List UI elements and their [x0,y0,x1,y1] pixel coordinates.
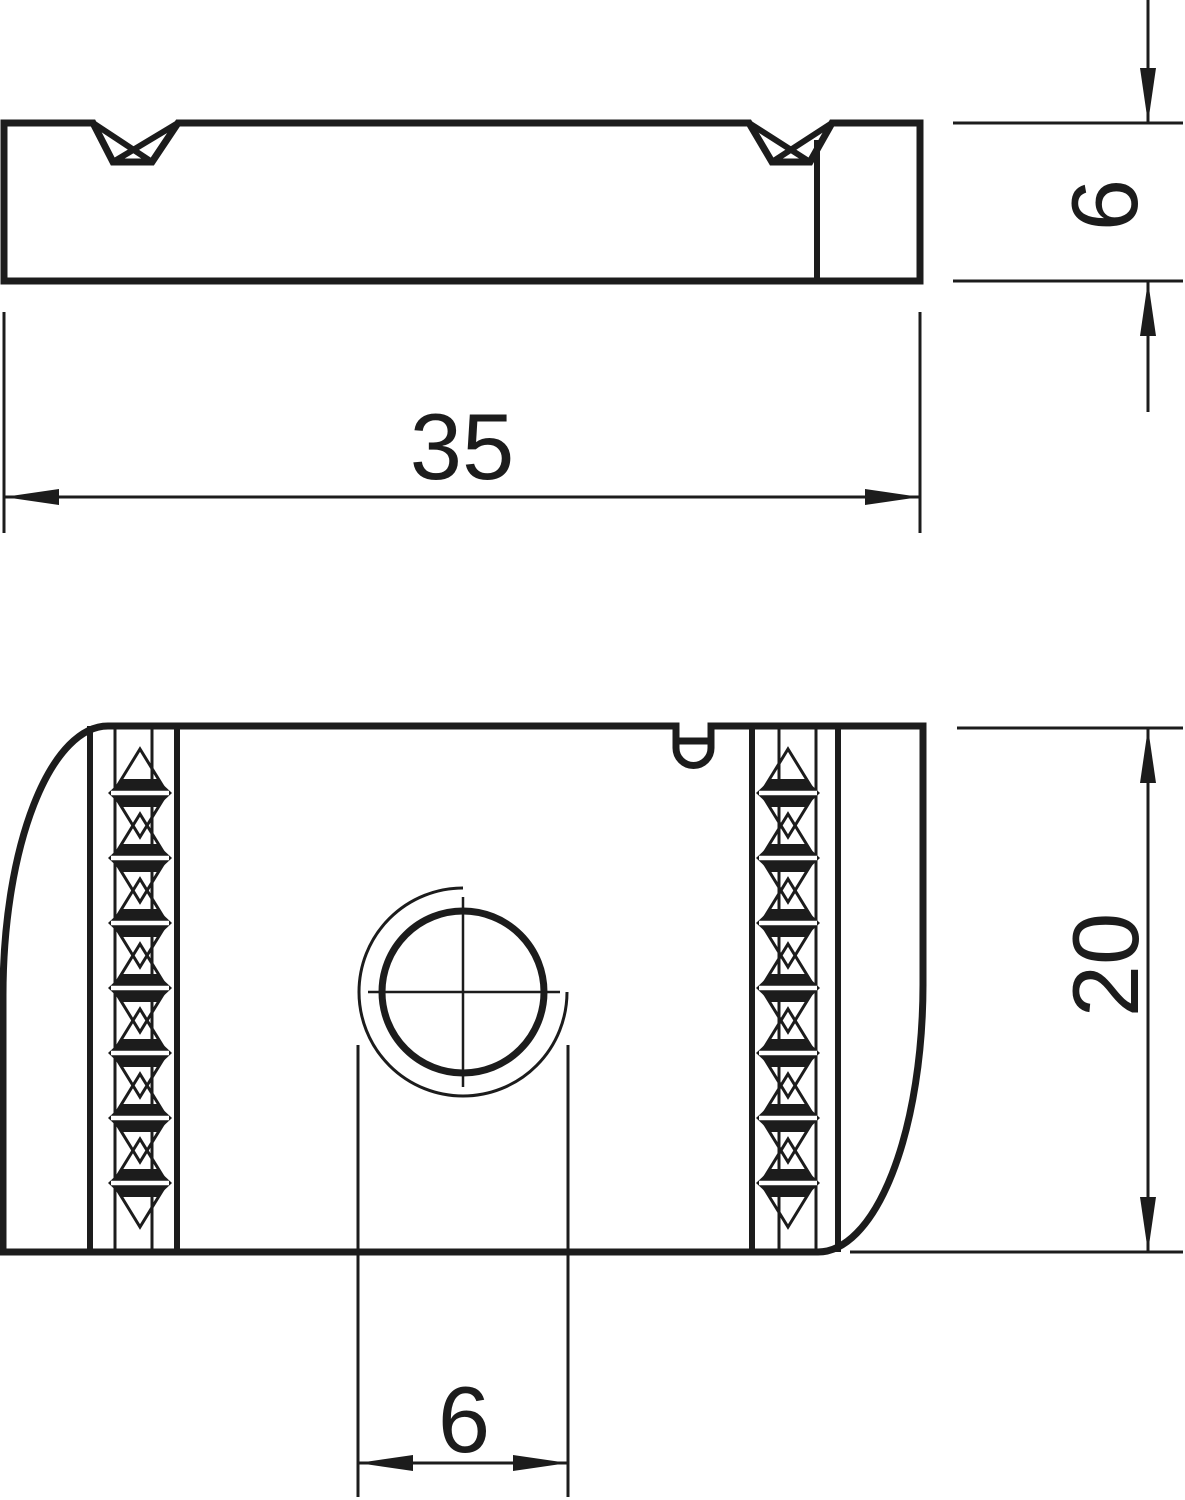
technical-drawing-page: 6 35 [0,0,1185,1500]
dimension-hole-label: 6 [438,1367,490,1472]
arrowhead-icon [1140,68,1156,123]
dimension-length-label: 35 [410,394,515,499]
channel-nut-drawing: 6 35 [0,0,1185,1500]
plan-view [3,726,923,1252]
arrowhead-icon [513,1455,568,1471]
right-rib-knurls [756,749,820,1227]
arrowhead-icon [1140,728,1156,783]
dimension-hole: 6 [358,1045,568,1497]
threaded-hole [359,888,567,1096]
side-view [4,123,920,281]
dimension-width: 20 [850,728,1183,1252]
left-rib-strip [90,726,177,1252]
dimension-thickness-label: 6 [1052,179,1157,231]
arrowhead-icon [1140,281,1156,336]
dimension-thickness: 6 [953,0,1183,412]
right-rib-strip [752,726,838,1252]
left-rib-knurls [108,749,172,1227]
arrowhead-icon [358,1455,413,1471]
dimension-length: 35 [4,312,920,533]
arrowhead-icon [4,489,59,505]
arrowhead-icon [1140,1197,1156,1252]
arrowhead-icon [865,489,920,505]
dimension-width-label: 20 [1053,913,1158,1018]
